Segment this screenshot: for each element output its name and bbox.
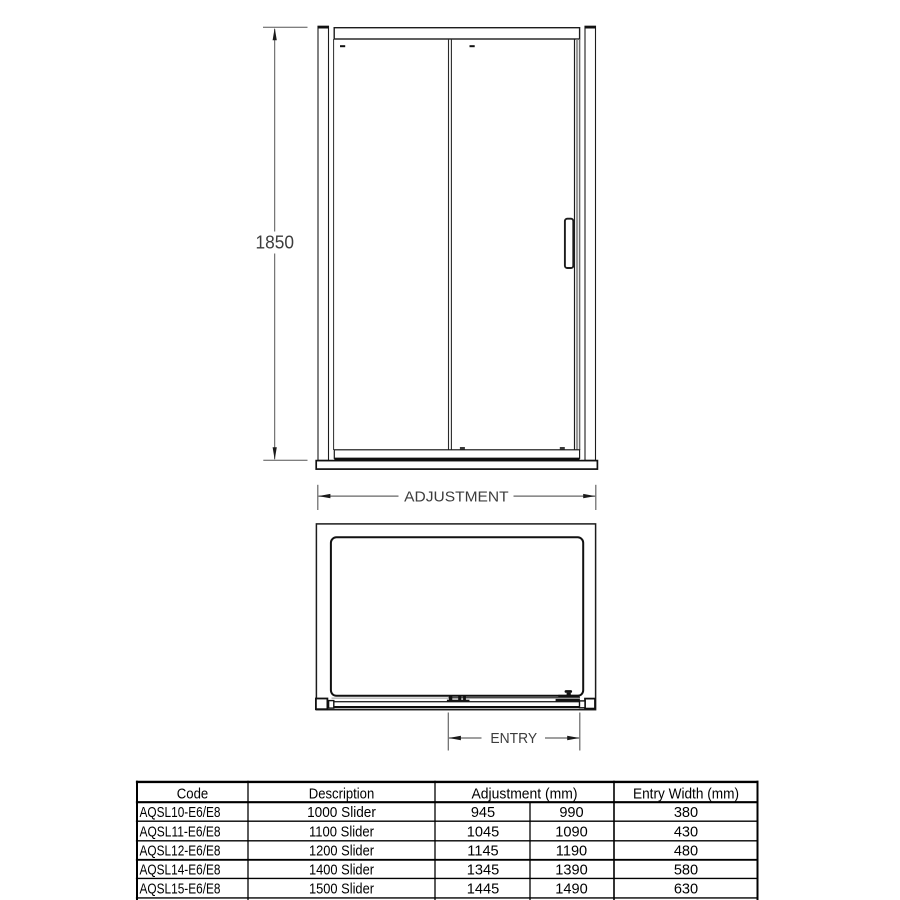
svg-text:1490: 1490 — [555, 882, 587, 898]
svg-text:AQSL15-E6/E8: AQSL15-E6/E8 — [140, 882, 221, 898]
svg-text:AQSL10-E6/E8: AQSL10-E6/E8 — [140, 805, 221, 821]
svg-text:430: 430 — [674, 824, 698, 840]
svg-text:AQSL14-E6/E8: AQSL14-E6/E8 — [140, 863, 221, 879]
svg-text:1850: 1850 — [256, 232, 295, 253]
svg-text:ENTRY: ENTRY — [490, 731, 537, 747]
svg-text:Adjustment (mm): Adjustment (mm) — [472, 786, 578, 802]
svg-text:990: 990 — [559, 805, 583, 821]
svg-text:AQSL11-E6/E8: AQSL11-E6/E8 — [140, 824, 221, 840]
svg-text:AQSL12-E6/E8: AQSL12-E6/E8 — [140, 844, 221, 860]
svg-text:1500 Slider: 1500 Slider — [309, 882, 374, 898]
svg-text:1045: 1045 — [467, 824, 499, 840]
svg-text:1090: 1090 — [555, 824, 587, 840]
svg-text:ADJUSTMENT: ADJUSTMENT — [404, 489, 509, 505]
svg-text:945: 945 — [471, 805, 495, 821]
svg-text:1390: 1390 — [555, 863, 587, 879]
svg-text:630: 630 — [674, 882, 698, 898]
svg-text:1190: 1190 — [556, 844, 587, 860]
svg-text:1000 Slider: 1000 Slider — [307, 805, 376, 821]
svg-text:1100 Slider: 1100 Slider — [309, 824, 374, 840]
svg-text:1345: 1345 — [467, 863, 499, 879]
svg-text:1145: 1145 — [467, 844, 498, 860]
svg-text:Description: Description — [309, 786, 375, 802]
svg-text:1200 Slider: 1200 Slider — [309, 844, 374, 860]
svg-text:Code: Code — [177, 786, 209, 802]
svg-text:1445: 1445 — [467, 882, 499, 898]
svg-text:1400 Slider: 1400 Slider — [309, 863, 374, 879]
svg-text:Entry Width (mm): Entry Width (mm) — [633, 786, 739, 802]
svg-text:380: 380 — [674, 805, 698, 821]
svg-text:480: 480 — [674, 844, 698, 860]
svg-text:580: 580 — [674, 863, 698, 879]
